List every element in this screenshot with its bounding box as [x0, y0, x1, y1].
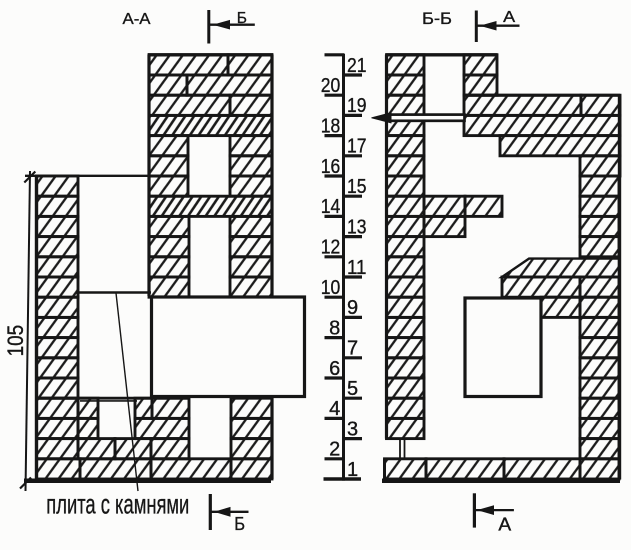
svg-text:А: А	[498, 513, 511, 534]
svg-text:17: 17	[347, 136, 367, 158]
svg-text:Б: Б	[234, 513, 245, 534]
svg-text:Б-Б: Б-Б	[422, 10, 452, 28]
svg-text:Б: Б	[237, 10, 247, 27]
svg-text:5: 5	[347, 378, 358, 400]
svg-text:20: 20	[321, 75, 341, 97]
svg-text:16: 16	[321, 156, 341, 178]
svg-text:4: 4	[329, 398, 340, 420]
svg-text:14: 14	[321, 196, 341, 218]
svg-text:19: 19	[347, 95, 367, 117]
svg-text:15: 15	[347, 176, 367, 198]
svg-text:плита с камнями: плита с камнями	[46, 489, 189, 520]
svg-text:7: 7	[347, 338, 358, 360]
svg-text:21: 21	[347, 55, 367, 77]
svg-text:1: 1	[347, 459, 358, 481]
svg-text:А: А	[503, 9, 516, 26]
svg-text:105: 105	[3, 325, 28, 357]
svg-text:12: 12	[321, 237, 341, 259]
svg-text:А-А: А-А	[123, 11, 152, 28]
svg-text:6: 6	[329, 358, 340, 380]
svg-text:11: 11	[347, 257, 367, 279]
svg-text:9: 9	[347, 297, 358, 319]
svg-text:13: 13	[347, 216, 367, 238]
svg-text:18: 18	[321, 115, 341, 137]
svg-text:3: 3	[347, 418, 358, 440]
svg-text:8: 8	[329, 317, 340, 339]
svg-text:10: 10	[321, 277, 341, 299]
svg-text:2: 2	[329, 439, 340, 461]
